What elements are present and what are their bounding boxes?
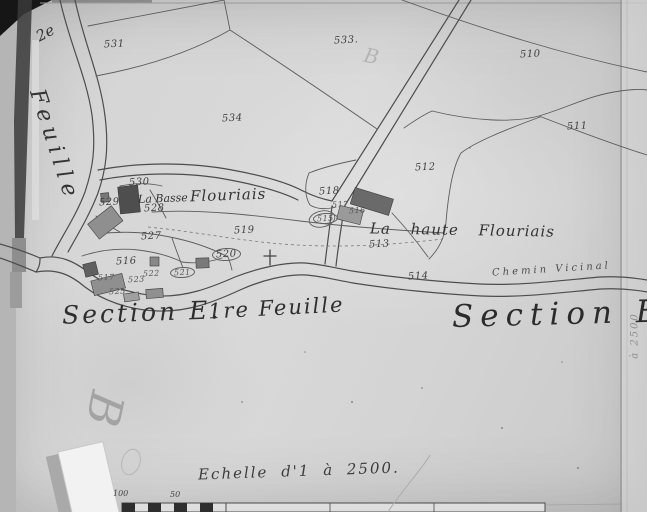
parcel-label-511: 511 [567, 120, 588, 132]
parcel-label-516-la-basse: 516 [116, 255, 137, 267]
parcel-label-525: 525 [109, 287, 126, 297]
parcel-label-516-la-haute: 516 [349, 206, 366, 216]
parcel-boundaries [82, 0, 647, 270]
parcel-label-514: 514 [408, 270, 429, 282]
parcel-label-523: 523 [128, 275, 145, 285]
place-label-la-haute-flouriais: La haute Flouriais [370, 219, 555, 240]
scale-tick-50: 50 [170, 490, 180, 499]
parcel-label-519: 519 [234, 224, 255, 236]
parcel-label-531: 531 [104, 38, 125, 50]
place-label-la-basse: La Basse [138, 191, 188, 206]
parcel-label-530: 530 [129, 176, 150, 188]
scale-tick-100: 100 [113, 489, 128, 498]
parcel-label-510: 510 [520, 48, 541, 60]
white-card [45, 442, 120, 512]
map-linework [0, 0, 647, 512]
place-label-flouriais: Flouriais [190, 185, 267, 206]
right-margin-note: à 2500 [630, 266, 641, 406]
parcel-label-529: 529 [99, 196, 120, 208]
boundary-topright [402, 0, 647, 72]
parcel-label-527: 527 [141, 230, 162, 242]
scale-bar [122, 503, 622, 512]
cross-marker [264, 250, 276, 265]
parcel-label-534: 534 [222, 112, 243, 124]
boundary-510-511 [432, 89, 647, 120]
parcel-label-533: 533. [334, 34, 359, 46]
parcel-label-517-la-basse: 517 [98, 273, 115, 283]
parcel-label-522: 522 [143, 269, 160, 279]
parcel-label-518: 518 [319, 185, 340, 197]
parcel-label-513: 513 [369, 238, 390, 250]
sheet-right-border [621, 0, 647, 512]
road-diagonal [332, 0, 459, 201]
title-section-left: Section E. [62, 295, 222, 330]
parcel-label-512: 512 [415, 161, 436, 173]
parcel-label-517-la-haute: 517 [332, 200, 349, 210]
cadastral-map-scan: 2e Feuille 531 533. 510 534 511 512 518 … [0, 0, 647, 512]
title-section-right: Section E. [452, 293, 647, 335]
